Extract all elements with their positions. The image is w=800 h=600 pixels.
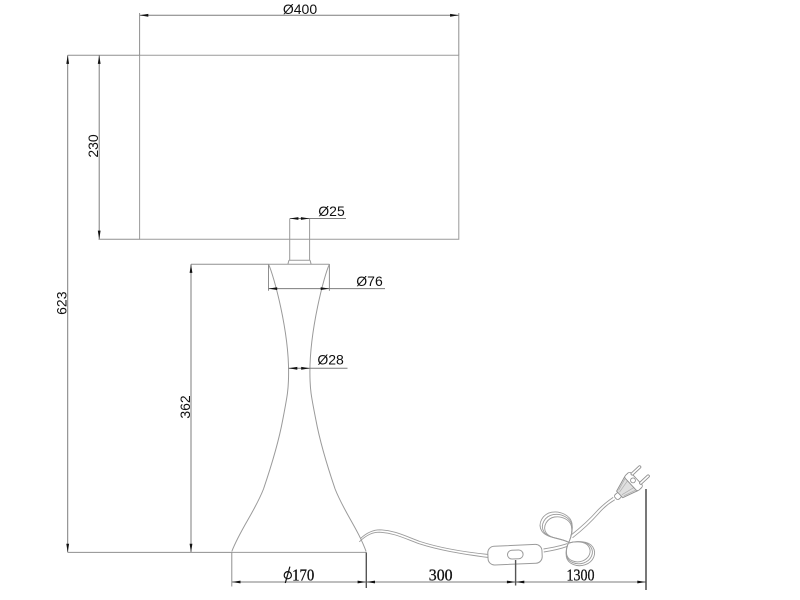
svg-text:Ø28: Ø28 (317, 352, 344, 368)
svg-text:623: 623 (54, 291, 70, 315)
svg-text:170: 170 (292, 566, 314, 585)
svg-text:230: 230 (85, 134, 101, 158)
svg-text:Ø76: Ø76 (356, 273, 383, 289)
svg-text:300: 300 (429, 566, 453, 585)
svg-text:Ø25: Ø25 (318, 203, 345, 219)
svg-text:362: 362 (177, 395, 193, 419)
svg-text:1300: 1300 (567, 566, 595, 585)
svg-text:Ø400: Ø400 (283, 1, 317, 17)
